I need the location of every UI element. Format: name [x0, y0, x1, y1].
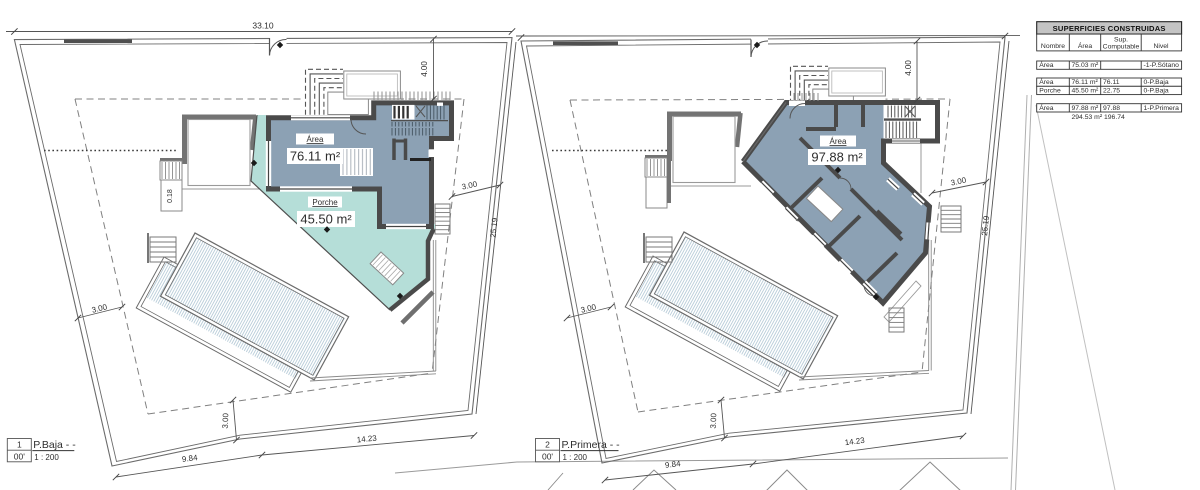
svg-text:Porche: Porche: [1039, 87, 1061, 94]
svg-text:196.74: 196.74: [1104, 114, 1125, 121]
svg-text:0-P.Baja: 0-P.Baja: [1144, 79, 1169, 86]
svg-text:P.Baja - -: P.Baja - -: [33, 439, 76, 451]
svg-text:76.11 m²: 76.11 m²: [1072, 79, 1099, 86]
svg-text:-1-P.Sótano: -1-P.Sótano: [1144, 62, 1180, 69]
svg-text:2: 2: [545, 440, 550, 450]
svg-text:97.88 m²: 97.88 m²: [811, 149, 863, 164]
svg-text:00': 00': [542, 451, 553, 461]
svg-text:3.00: 3.00: [709, 412, 719, 429]
svg-text:294.53 m²: 294.53 m²: [1072, 114, 1103, 121]
svg-text:1-P.Primera: 1-P.Primera: [1144, 105, 1180, 112]
svg-text:22.75: 22.75: [1103, 87, 1120, 94]
svg-text:Área: Área: [1039, 77, 1054, 86]
svg-text:Área: Área: [830, 137, 847, 146]
svg-text:00': 00': [14, 451, 25, 461]
svg-text:97.88: 97.88: [1103, 105, 1120, 112]
svg-text:Porche: Porche: [312, 198, 338, 207]
svg-text:0-P.Baja: 0-P.Baja: [1144, 87, 1169, 94]
svg-text:76.11 m²: 76.11 m²: [290, 148, 341, 163]
svg-text:0.18: 0.18: [167, 189, 174, 203]
svg-text:Área: Área: [1078, 41, 1093, 50]
svg-text:4.00: 4.00: [904, 60, 913, 76]
svg-text:97.88 m²: 97.88 m²: [1072, 105, 1100, 112]
svg-text:76.11: 76.11: [1103, 79, 1120, 86]
svg-text:P.Primera - -: P.Primera - -: [562, 439, 621, 451]
svg-text:3.00: 3.00: [221, 412, 231, 429]
svg-text:1 : 200: 1 : 200: [34, 453, 59, 462]
svg-text:Sup.: Sup.: [1114, 37, 1128, 44]
svg-text:45.50 m²: 45.50 m²: [300, 211, 352, 226]
svg-text:4.00: 4.00: [420, 61, 429, 77]
svg-text:33.10: 33.10: [252, 21, 274, 31]
svg-text:Nombre: Nombre: [1041, 43, 1065, 50]
svg-text:Área: Área: [307, 135, 324, 144]
svg-text:1: 1: [17, 440, 22, 450]
svg-text:75.03 m²: 75.03 m²: [1072, 62, 1100, 69]
svg-text:Nivel: Nivel: [1153, 43, 1169, 50]
svg-text:Área: Área: [1039, 60, 1054, 69]
svg-text:1 : 200: 1 : 200: [563, 453, 588, 462]
svg-text:45.50 m²: 45.50 m²: [1072, 87, 1100, 94]
svg-text:Computable: Computable: [1103, 44, 1140, 51]
svg-text:SUPERFICIES CONSTRUIDAS: SUPERFICIES CONSTRUIDAS: [1053, 24, 1166, 33]
svg-text:Área: Área: [1039, 103, 1054, 112]
svg-text:9.84: 9.84: [664, 459, 681, 470]
